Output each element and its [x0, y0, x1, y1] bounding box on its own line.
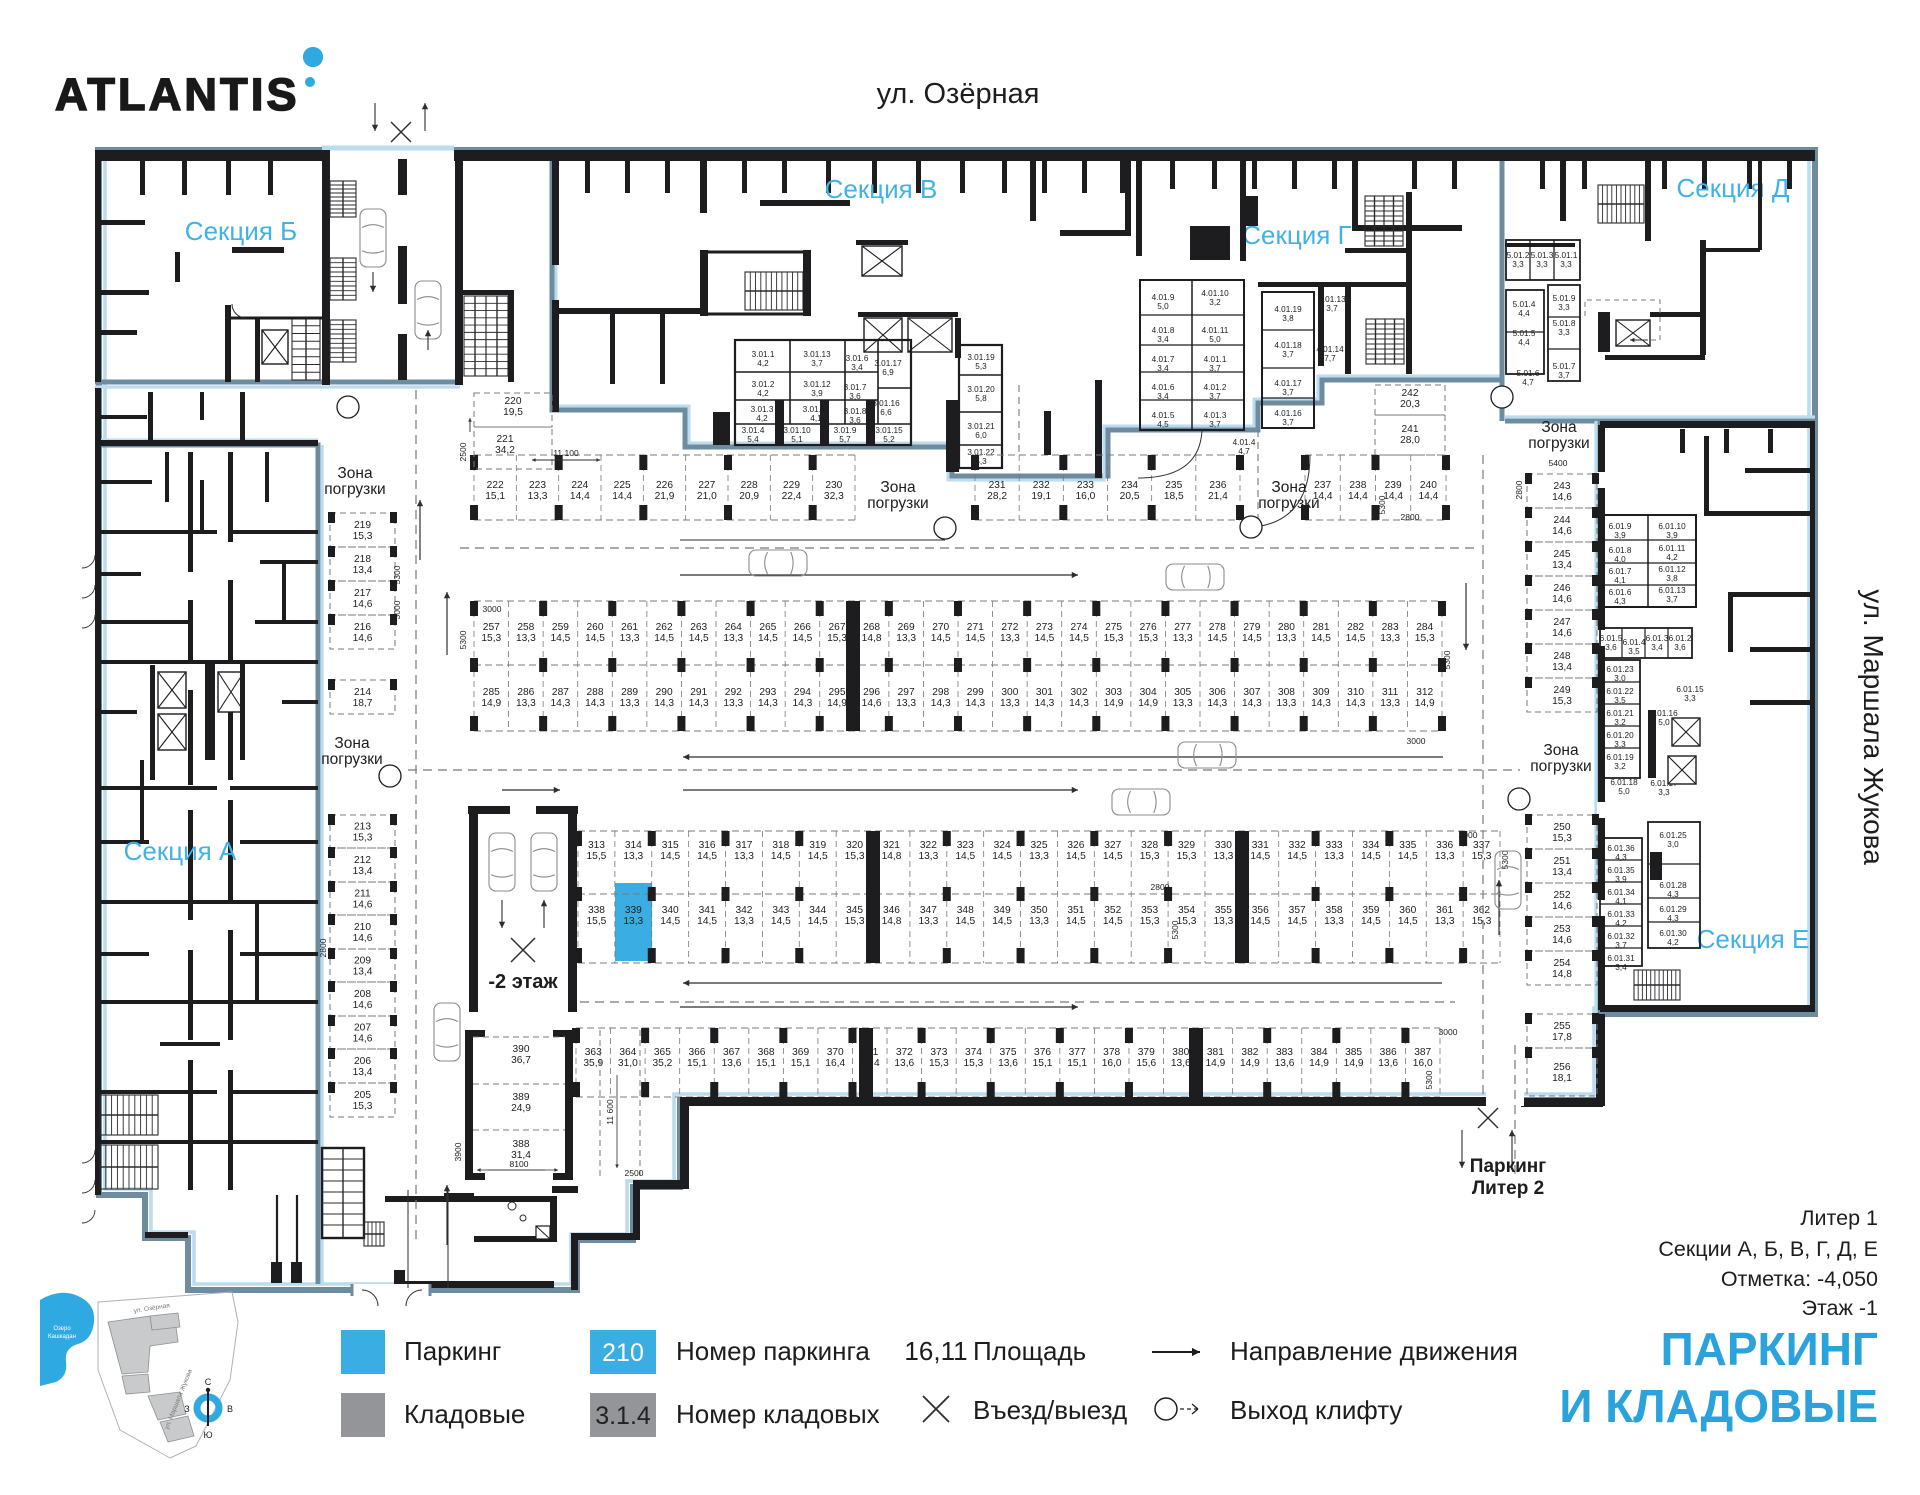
svg-text:Выход клифту: Выход клифту: [1230, 1395, 1402, 1425]
svg-text:308: 308: [1278, 687, 1295, 698]
svg-text:373: 373: [930, 1047, 947, 1058]
svg-text:14,9: 14,9: [1104, 698, 1124, 709]
svg-text:354: 354: [1178, 905, 1195, 916]
svg-text:14,3: 14,3: [1207, 698, 1227, 709]
svg-text:3,9: 3,9: [811, 389, 823, 398]
svg-text:285: 285: [483, 687, 500, 698]
svg-text:16,0: 16,0: [1413, 1058, 1433, 1069]
svg-text:5300: 5300: [392, 565, 402, 584]
svg-text:Литер 1: Литер 1: [1800, 1206, 1878, 1230]
svg-text:3,3: 3,3: [1512, 260, 1524, 269]
svg-text:245: 245: [1554, 549, 1571, 560]
svg-text:13,4: 13,4: [353, 565, 373, 576]
svg-text:5.01.8: 5.01.8: [1553, 319, 1576, 328]
svg-text:222: 222: [487, 480, 504, 491]
svg-text:2800: 2800: [1401, 512, 1420, 522]
svg-text:14,5: 14,5: [1103, 916, 1123, 927]
svg-text:3,3: 3,3: [1658, 788, 1670, 797]
svg-text:335: 335: [1399, 840, 1416, 851]
svg-text:13,3: 13,3: [723, 698, 743, 709]
svg-text:220: 220: [505, 396, 522, 407]
svg-text:погрузки: погрузки: [1258, 495, 1319, 512]
svg-text:231: 231: [989, 480, 1006, 491]
svg-text:3,7: 3,7: [1615, 941, 1627, 950]
svg-text:226: 226: [656, 480, 673, 491]
svg-text:14,5: 14,5: [1103, 851, 1123, 862]
svg-text:Зона: Зона: [337, 465, 373, 482]
svg-text:13,3: 13,3: [723, 633, 743, 644]
svg-text:3,4: 3,4: [851, 363, 863, 372]
svg-text:234: 234: [1121, 480, 1138, 491]
svg-text:6.01.5: 6.01.5: [1600, 634, 1623, 643]
svg-text:380: 380: [1172, 1047, 1189, 1058]
svg-text:4,3: 4,3: [1614, 597, 1626, 606]
svg-text:4.01.1: 4.01.1: [1204, 355, 1227, 364]
svg-text:16,0: 16,0: [1076, 491, 1096, 502]
svg-text:359: 359: [1362, 905, 1379, 916]
svg-text:3,4: 3,4: [1651, 643, 1663, 652]
svg-text:5,8: 5,8: [975, 394, 987, 403]
svg-text:Отметка: -4,050: Отметка: -4,050: [1721, 1267, 1878, 1291]
svg-text:15,4: 15,4: [860, 1058, 880, 1069]
svg-text:3,3: 3,3: [1558, 328, 1570, 337]
svg-text:347: 347: [920, 905, 937, 916]
svg-text:5,4: 5,4: [747, 435, 759, 444]
svg-text:ул. Маршала Жукова: ул. Маршала Жукова: [1858, 589, 1889, 865]
svg-text:333: 333: [1326, 840, 1343, 851]
svg-text:14,5: 14,5: [1066, 916, 1086, 927]
svg-text:355: 355: [1215, 905, 1232, 916]
svg-text:287: 287: [552, 687, 569, 698]
svg-text:З: З: [184, 1404, 189, 1414]
svg-text:14,5: 14,5: [1250, 851, 1270, 862]
svg-text:218: 218: [354, 554, 371, 565]
svg-text:14,5: 14,5: [758, 633, 778, 644]
svg-text:14,5: 14,5: [771, 916, 791, 927]
svg-text:14,3: 14,3: [689, 698, 709, 709]
svg-text:368: 368: [758, 1047, 775, 1058]
svg-text:365: 365: [654, 1047, 671, 1058]
svg-text:3,7: 3,7: [1326, 304, 1338, 313]
svg-text:339: 339: [625, 905, 642, 916]
svg-text:5,0: 5,0: [1209, 335, 1221, 344]
svg-text:249: 249: [1554, 685, 1571, 696]
svg-text:374: 374: [965, 1047, 982, 1058]
svg-text:13,3: 13,3: [1213, 916, 1233, 927]
svg-text:14,5: 14,5: [931, 633, 951, 644]
svg-text:14,5: 14,5: [1346, 633, 1366, 644]
svg-text:14,3: 14,3: [965, 698, 985, 709]
svg-text:18,7: 18,7: [353, 698, 373, 709]
svg-text:6.01.6: 6.01.6: [1609, 588, 1632, 597]
svg-text:14,5: 14,5: [771, 851, 791, 862]
svg-text:6.01.3: 6.01.3: [1646, 634, 1669, 643]
svg-text:35,9: 35,9: [583, 1058, 603, 1069]
svg-text:257: 257: [483, 622, 500, 633]
svg-text:325: 325: [1031, 840, 1048, 851]
svg-text:269: 269: [898, 622, 915, 633]
svg-text:3.01.17: 3.01.17: [874, 359, 902, 368]
svg-text:15,3: 15,3: [481, 633, 501, 644]
svg-text:14,3: 14,3: [585, 698, 605, 709]
svg-text:227: 227: [698, 480, 715, 491]
svg-text:3,7: 3,7: [1282, 418, 1294, 427]
svg-text:13,3: 13,3: [734, 916, 754, 927]
svg-text:3.01.19: 3.01.19: [967, 353, 995, 362]
svg-text:322: 322: [920, 840, 937, 851]
svg-text:-2 этаж: -2 этаж: [488, 971, 558, 993]
svg-text:369: 369: [792, 1047, 809, 1058]
svg-text:6.01.28: 6.01.28: [1659, 881, 1687, 890]
svg-text:14,9: 14,9: [827, 698, 847, 709]
svg-text:14,5: 14,5: [1287, 916, 1307, 927]
svg-text:213: 213: [354, 822, 371, 833]
svg-text:14,4: 14,4: [1418, 491, 1438, 502]
svg-text:385: 385: [1345, 1047, 1362, 1058]
svg-text:286: 286: [517, 687, 534, 698]
svg-text:5.01.9: 5.01.9: [1553, 294, 1576, 303]
svg-text:238: 238: [1349, 480, 1366, 491]
svg-text:Кашкадан: Кашкадан: [48, 1334, 76, 1340]
svg-text:15,1: 15,1: [1033, 1058, 1053, 1069]
svg-text:3.01.8: 3.01.8: [844, 407, 867, 416]
svg-text:271: 271: [967, 622, 984, 633]
svg-text:15,5: 15,5: [587, 916, 607, 927]
svg-text:348: 348: [957, 905, 974, 916]
svg-text:5300: 5300: [1442, 650, 1452, 669]
svg-text:5300: 5300: [1424, 1070, 1434, 1089]
svg-text:378: 378: [1103, 1047, 1120, 1058]
svg-text:13,3: 13,3: [620, 633, 640, 644]
svg-text:4,0: 4,0: [1614, 555, 1626, 564]
svg-text:4.01.3: 4.01.3: [1204, 411, 1227, 420]
svg-text:14,5: 14,5: [1398, 851, 1418, 862]
svg-text:388: 388: [513, 1139, 530, 1150]
svg-text:14,5: 14,5: [1287, 851, 1307, 862]
svg-text:Паркинг: Паркинг: [404, 1336, 501, 1366]
svg-text:14,4: 14,4: [612, 491, 632, 502]
svg-text:14,9: 14,9: [1415, 698, 1435, 709]
svg-text:13,6: 13,6: [1275, 1058, 1295, 1069]
svg-text:379: 379: [1138, 1047, 1155, 1058]
svg-text:14,6: 14,6: [353, 1034, 373, 1045]
svg-text:14,3: 14,3: [931, 698, 951, 709]
svg-text:14,5: 14,5: [585, 633, 605, 644]
svg-text:13,4: 13,4: [1552, 560, 1572, 571]
svg-text:3.01.12: 3.01.12: [803, 380, 831, 389]
svg-text:214: 214: [354, 687, 371, 698]
svg-text:3.01.16: 3.01.16: [872, 399, 900, 408]
svg-text:228: 228: [741, 480, 758, 491]
svg-text:13,3: 13,3: [1324, 851, 1344, 862]
svg-text:256: 256: [1554, 1062, 1571, 1073]
svg-text:366: 366: [688, 1047, 705, 1058]
svg-text:352: 352: [1104, 905, 1121, 916]
svg-text:Кладовые: Кладовые: [404, 1399, 525, 1429]
svg-text:5,0: 5,0: [1658, 718, 1670, 727]
svg-text:14,5: 14,5: [1242, 633, 1262, 644]
svg-text:3,6: 3,6: [1605, 643, 1617, 652]
svg-text:14,4: 14,4: [570, 491, 590, 502]
svg-text:11 600: 11 600: [605, 1099, 615, 1125]
svg-text:5300: 5300: [458, 630, 468, 649]
svg-text:4,2: 4,2: [1615, 919, 1627, 928]
svg-text:14,6: 14,6: [1552, 935, 1572, 946]
svg-text:345: 345: [846, 905, 863, 916]
svg-text:229: 229: [783, 480, 800, 491]
svg-text:Зона: Зона: [1271, 479, 1307, 496]
svg-text:356: 356: [1252, 905, 1269, 916]
svg-text:225: 225: [614, 480, 631, 491]
svg-text:погрузки: погрузки: [321, 751, 382, 768]
svg-text:264: 264: [725, 622, 742, 633]
svg-text:15,3: 15,3: [1177, 851, 1197, 862]
svg-text:343: 343: [772, 905, 789, 916]
svg-text:14,5: 14,5: [1066, 851, 1086, 862]
svg-text:погрузки: погрузки: [324, 481, 385, 498]
svg-text:272: 272: [1001, 622, 1018, 633]
svg-text:14,3: 14,3: [1346, 698, 1366, 709]
svg-text:3,6: 3,6: [849, 392, 861, 401]
svg-text:210: 210: [602, 1339, 644, 1367]
svg-text:15,1: 15,1: [485, 491, 505, 502]
svg-text:3,2: 3,2: [1209, 298, 1221, 307]
svg-text:3,7: 3,7: [1209, 364, 1221, 373]
svg-text:376: 376: [1034, 1047, 1051, 1058]
svg-text:3,0: 3,0: [1614, 674, 1626, 683]
svg-text:14,5: 14,5: [551, 633, 571, 644]
svg-text:241: 241: [1402, 424, 1419, 435]
svg-text:4.01.2: 4.01.2: [1204, 383, 1227, 392]
svg-text:13,3: 13,3: [896, 698, 916, 709]
svg-text:386: 386: [1380, 1047, 1397, 1058]
svg-text:389: 389: [513, 1092, 530, 1103]
svg-text:14,5: 14,5: [1069, 633, 1089, 644]
svg-text:6.01.20: 6.01.20: [1606, 731, 1634, 740]
svg-text:15,3: 15,3: [1140, 851, 1160, 862]
svg-text:13,3: 13,3: [1277, 633, 1297, 644]
svg-text:Секция Г: Секция Г: [1242, 220, 1351, 250]
svg-text:погрузки: погрузки: [1530, 758, 1591, 775]
svg-text:3000: 3000: [392, 600, 402, 619]
svg-text:289: 289: [621, 687, 638, 698]
svg-text:28,2: 28,2: [987, 491, 1007, 502]
svg-text:13,3: 13,3: [1173, 698, 1193, 709]
svg-text:344: 344: [809, 905, 826, 916]
svg-text:Литер 2: Литер 2: [1472, 1178, 1544, 1199]
svg-text:15,3: 15,3: [845, 916, 865, 927]
svg-text:20,3: 20,3: [1400, 399, 1420, 410]
svg-text:6.01.21: 6.01.21: [1606, 709, 1634, 718]
svg-text:206: 206: [354, 1056, 371, 1067]
svg-text:337: 337: [1473, 840, 1490, 851]
svg-text:14,5: 14,5: [697, 916, 717, 927]
svg-text:13,3: 13,3: [623, 916, 643, 927]
svg-text:ATLANTIS: ATLANTIS: [55, 69, 300, 120]
svg-text:377: 377: [1069, 1047, 1086, 1058]
svg-text:6.01.33: 6.01.33: [1607, 910, 1635, 919]
svg-text:16,11: 16,11: [904, 1336, 967, 1366]
svg-text:14,3: 14,3: [1035, 698, 1055, 709]
svg-text:14,9: 14,9: [1205, 1058, 1225, 1069]
svg-text:14,6: 14,6: [1552, 492, 1572, 503]
svg-text:332: 332: [1289, 840, 1306, 851]
svg-text:14,9: 14,9: [1138, 698, 1158, 709]
svg-text:15,3: 15,3: [1472, 916, 1492, 927]
svg-text:3,3: 3,3: [1614, 740, 1626, 749]
svg-text:293: 293: [759, 687, 776, 698]
svg-text:209: 209: [354, 956, 371, 967]
svg-text:5.01.1: 5.01.1: [1555, 251, 1578, 260]
svg-text:334: 334: [1362, 840, 1379, 851]
svg-text:3,5: 3,5: [1614, 696, 1626, 705]
svg-text:5400: 5400: [1549, 458, 1568, 468]
svg-text:275: 275: [1105, 622, 1122, 633]
svg-text:24,9: 24,9: [511, 1103, 531, 1114]
svg-text:20,9: 20,9: [739, 491, 759, 502]
svg-text:292: 292: [725, 687, 742, 698]
svg-text:14,9: 14,9: [1309, 1058, 1329, 1069]
svg-text:14,5: 14,5: [660, 851, 680, 862]
svg-text:20,5: 20,5: [1120, 491, 1140, 502]
svg-text:4,4: 4,4: [1518, 309, 1530, 318]
svg-text:ПАРКИНГ: ПАРКИНГ: [1661, 1323, 1878, 1375]
svg-text:3,3: 3,3: [1560, 260, 1572, 269]
svg-text:251: 251: [1554, 856, 1571, 867]
svg-text:4,1: 4,1: [1615, 897, 1627, 906]
svg-text:3,4: 3,4: [1157, 364, 1169, 373]
svg-text:307: 307: [1243, 687, 1260, 698]
svg-text:239: 239: [1385, 480, 1402, 491]
svg-text:15,5: 15,5: [587, 851, 607, 862]
svg-text:305: 305: [1174, 687, 1191, 698]
svg-text:4,2: 4,2: [756, 414, 768, 423]
svg-text:14,6: 14,6: [1552, 526, 1572, 537]
svg-text:3.01.4: 3.01.4: [742, 426, 765, 435]
svg-text:И КЛАДОВЫЕ: И КЛАДОВЫЕ: [1559, 1380, 1878, 1432]
svg-text:14,5: 14,5: [808, 916, 828, 927]
svg-text:4.01.7: 4.01.7: [1152, 355, 1175, 364]
svg-text:6.01.19: 6.01.19: [1606, 753, 1634, 762]
svg-text:5.01.6: 5.01.6: [1517, 369, 1540, 378]
svg-text:13,3: 13,3: [1435, 851, 1455, 862]
svg-text:14,6: 14,6: [1552, 628, 1572, 639]
svg-text:Въезд/выезд: Въезд/выезд: [973, 1395, 1127, 1425]
svg-text:353: 353: [1141, 905, 1158, 916]
svg-text:4,2: 4,2: [757, 389, 769, 398]
svg-text:13,6: 13,6: [1171, 1058, 1191, 1069]
svg-text:13,3: 13,3: [1029, 916, 1049, 927]
svg-text:4.01.17: 4.01.17: [1274, 379, 1302, 388]
svg-text:291: 291: [690, 687, 707, 698]
svg-text:6.01.7: 6.01.7: [1609, 567, 1632, 576]
svg-text:2500: 2500: [458, 442, 468, 461]
svg-text:6.01.18: 6.01.18: [1610, 778, 1638, 787]
svg-text:14,9: 14,9: [1344, 1058, 1364, 1069]
svg-text:13,3: 13,3: [918, 916, 938, 927]
svg-text:7,7: 7,7: [1324, 354, 1336, 363]
svg-text:3.01.2: 3.01.2: [752, 380, 775, 389]
svg-text:244: 244: [1554, 515, 1571, 526]
svg-text:19,5: 19,5: [503, 407, 523, 418]
svg-text:14,3: 14,3: [654, 698, 674, 709]
svg-text:14,3: 14,3: [1242, 698, 1262, 709]
svg-text:14,9: 14,9: [481, 698, 501, 709]
svg-text:212: 212: [354, 855, 371, 866]
svg-text:21,4: 21,4: [1208, 491, 1228, 502]
svg-text:15,1: 15,1: [756, 1058, 776, 1069]
svg-text:3,3: 3,3: [1536, 260, 1548, 269]
svg-text:217: 217: [354, 588, 371, 599]
svg-text:14,3: 14,3: [551, 698, 571, 709]
svg-text:219: 219: [354, 520, 371, 531]
svg-text:3,4: 3,4: [1157, 335, 1169, 344]
svg-text:3000: 3000: [1439, 1027, 1458, 1037]
svg-text:211: 211: [354, 889, 371, 900]
svg-text:318: 318: [772, 840, 789, 851]
svg-text:погрузки: погрузки: [1528, 435, 1589, 452]
svg-text:6.01.9: 6.01.9: [1609, 522, 1632, 531]
svg-text:13,4: 13,4: [353, 1067, 373, 1078]
svg-text:273: 273: [1036, 622, 1053, 633]
svg-text:14,5: 14,5: [697, 851, 717, 862]
svg-text:3.01.21: 3.01.21: [967, 422, 995, 431]
svg-text:346: 346: [883, 905, 900, 916]
svg-text:5.01.7: 5.01.7: [1553, 362, 1576, 371]
svg-text:295: 295: [829, 687, 846, 698]
svg-text:Ю: Ю: [203, 1430, 212, 1440]
svg-text:6.01.25: 6.01.25: [1659, 831, 1687, 840]
svg-text:14,3: 14,3: [793, 698, 813, 709]
svg-text:3.01.1: 3.01.1: [752, 350, 775, 359]
svg-text:21,9: 21,9: [655, 491, 675, 502]
svg-text:6.01.31: 6.01.31: [1607, 954, 1635, 963]
svg-text:21,0: 21,0: [697, 491, 717, 502]
svg-text:3900: 3900: [453, 1142, 463, 1161]
svg-text:302: 302: [1071, 687, 1088, 698]
svg-text:14,5: 14,5: [1361, 851, 1381, 862]
svg-text:4.01.5: 4.01.5: [1152, 411, 1175, 420]
svg-text:387: 387: [1414, 1047, 1431, 1058]
svg-text:243: 243: [1554, 481, 1571, 492]
svg-text:3.01.15: 3.01.15: [875, 426, 903, 435]
svg-text:14,6: 14,6: [353, 933, 373, 944]
svg-text:248: 248: [1554, 651, 1571, 662]
svg-text:351: 351: [1067, 905, 1084, 916]
svg-text:270: 270: [932, 622, 949, 633]
svg-text:382: 382: [1241, 1047, 1258, 1058]
svg-text:6.01.32: 6.01.32: [1607, 932, 1635, 941]
svg-text:3,8: 3,8: [1666, 574, 1678, 583]
svg-text:384: 384: [1311, 1047, 1328, 1058]
svg-text:3,6: 3,6: [1674, 643, 1686, 652]
svg-text:375: 375: [1000, 1047, 1017, 1058]
svg-text:310: 310: [1347, 687, 1364, 698]
svg-text:390: 390: [513, 1044, 530, 1055]
svg-text:280: 280: [1278, 622, 1295, 633]
svg-text:3000: 3000: [1407, 736, 1426, 746]
svg-text:4,4: 4,4: [1518, 338, 1530, 347]
svg-text:282: 282: [1347, 622, 1364, 633]
svg-text:14,5: 14,5: [955, 851, 975, 862]
svg-text:288: 288: [587, 687, 604, 698]
svg-text:14,5: 14,5: [793, 633, 813, 644]
svg-text:15,3: 15,3: [1552, 696, 1572, 707]
svg-text:255: 255: [1554, 1021, 1571, 1032]
svg-text:301: 301: [1036, 687, 1053, 698]
svg-text:4,2: 4,2: [757, 359, 769, 368]
svg-text:6.01.10: 6.01.10: [1658, 522, 1686, 531]
